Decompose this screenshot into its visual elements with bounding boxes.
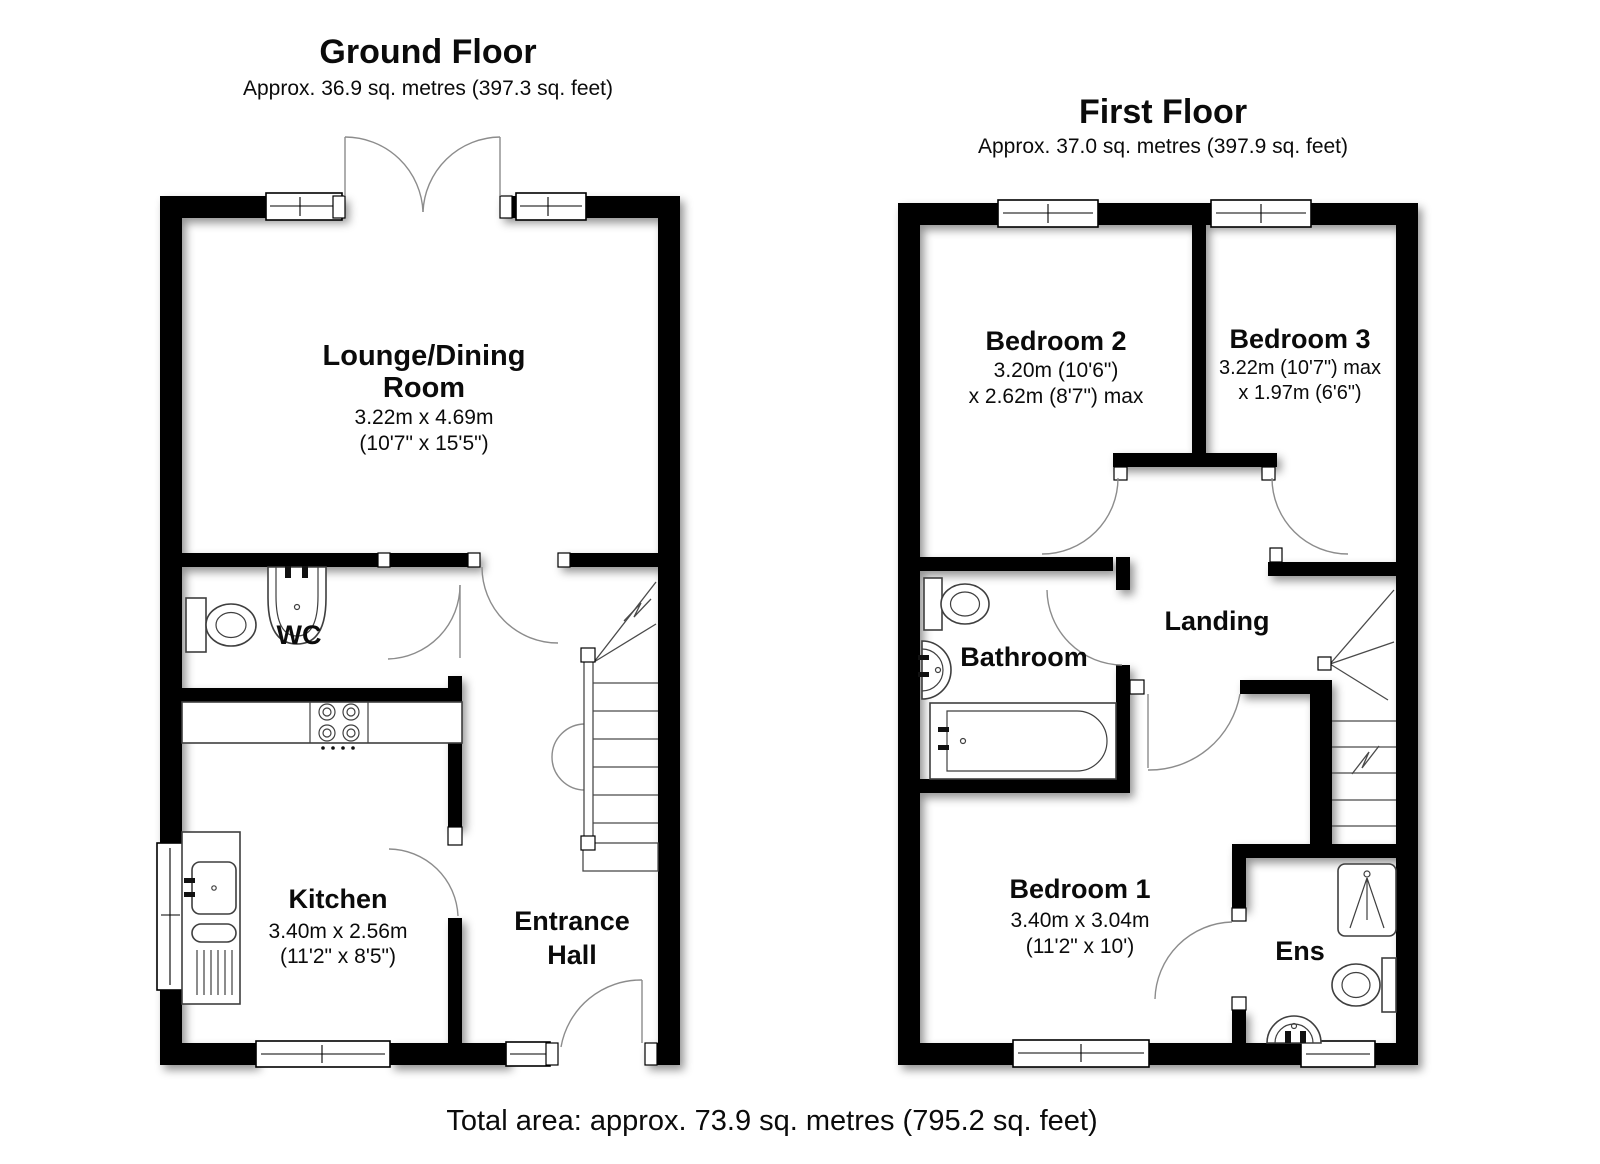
room-label-entrance-hall: Entrance [514,906,630,936]
room-label-kitchen: Kitchen [288,884,387,914]
bathroom-toilet-icon [924,578,989,630]
door-post [333,196,345,218]
door-post [448,827,462,845]
door-post [546,1043,558,1065]
window-lounge-left [266,193,342,220]
ensuite-basin-icon [1267,1016,1321,1043]
window-bedroom3 [1211,200,1311,227]
kitchen-sink-icon [182,832,240,1004]
window-ensuite [1301,1041,1375,1067]
cupboard-door-arc [552,724,585,757]
ensuite-toilet-icon [1332,958,1396,1012]
door-swing-arc [423,137,500,212]
room-dim-lounge-imperial: (10'7" x 15'5") [359,432,488,455]
room-label-lounge: Lounge/Dining [323,340,526,372]
banister-post [581,648,595,662]
door-swing-arc [561,980,642,1047]
shower-icon [1338,864,1396,936]
window-kitchen-bottom [256,1041,390,1067]
door-swing-arc [345,137,423,212]
door-swing-arc [1155,922,1232,999]
wc-toilet-icon [186,598,256,652]
room-label-bedroom2: Bedroom 2 [985,326,1126,356]
window-bedroom1 [1013,1040,1149,1067]
door-post [1130,680,1144,694]
door-swing-arc [1148,694,1240,770]
cupboard-door-arc [552,757,585,790]
door-swing-arc [1042,478,1118,554]
door-post [1114,467,1127,480]
room-dim-bedroom2-1: 3.20m (10'6") [994,359,1119,382]
bathroom-basin-icon [918,641,951,699]
ground-floor-plan: Ground Floor Approx. 36.9 sq. metres (39… [157,33,680,1067]
floorplan-page: Ground Floor Approx. 36.9 sq. metres (39… [0,0,1600,1164]
room-label-entrance-hall-2: Hall [547,940,597,970]
room-dim-bedroom3-1: 3.22m (10'7") max [1219,357,1381,379]
room-label-landing: Landing [1165,606,1270,636]
banister-post [1318,657,1331,670]
ground-floor-title: Ground Floor [319,33,536,71]
room-label-ensuite: Ens [1275,936,1325,966]
stair-banister [584,652,593,842]
door-post [1262,467,1275,480]
ground-floor-area: Approx. 36.9 sq. metres (397.3 sq. feet) [243,77,613,100]
first-floor-title: First Floor [1079,93,1247,131]
ground-floor-labels: Lounge/Dining Room 3.22m x 4.69m (10'7" … [269,340,630,970]
door-post [1232,997,1246,1010]
room-dim-kitchen-imperial: (11'2" x 8'5") [280,945,396,968]
ground-floor-stairs-icon [581,582,658,871]
room-dim-bedroom3-2: x 1.97m (6'6") [1238,382,1361,404]
window-kitchen-side [157,843,184,990]
room-dim-lounge-metric: 3.22m x 4.69m [355,406,494,429]
kitchen-counter-icon [182,702,462,743]
room-label-bathroom: Bathroom [960,642,1088,672]
door-post [645,1043,657,1065]
door-swing-arc [1272,478,1348,554]
banister-post [581,836,595,850]
door-post [1270,548,1282,562]
room-dim-bedroom1-metric: 3.40m x 3.04m [1011,909,1150,932]
window-lounge-right [516,193,586,220]
door-swing-arc [482,567,558,643]
first-floor-plan: First Floor Approx. 37.0 sq. metres (397… [898,93,1418,1067]
door-post [500,196,512,218]
first-floor-area: Approx. 37.0 sq. metres (397.9 sq. feet) [978,135,1348,158]
room-label-bedroom3: Bedroom 3 [1229,324,1370,354]
room-dim-bedroom1-imperial: (11'2" x 10') [1026,935,1134,958]
room-label-lounge-2: Room [383,372,465,404]
floorplan-drawing: Ground Floor Approx. 36.9 sq. metres (39… [0,0,1600,1164]
door-post [1232,908,1246,921]
window-hall-bottom [506,1042,550,1066]
room-dim-kitchen-metric: 3.40m x 2.56m [269,920,408,943]
room-label-bedroom1: Bedroom 1 [1009,874,1150,904]
total-area-text: Total area: approx. 73.9 sq. metres (795… [446,1105,1097,1137]
door-swing-arc [389,849,458,916]
stair-break-mark [1352,746,1379,774]
door-post [558,553,570,567]
door-post [378,553,390,567]
door-swing-arc [388,585,460,659]
door-post [468,553,480,567]
room-dim-bedroom2-2: x 2.62m (8'7") max [969,385,1144,408]
bathtub-icon [930,703,1116,779]
room-label-wc: WC [277,620,322,650]
first-floor-labels: Bedroom 2 3.20m (10'6") x 2.62m (8'7") m… [960,324,1381,966]
window-bedroom2 [998,200,1098,227]
